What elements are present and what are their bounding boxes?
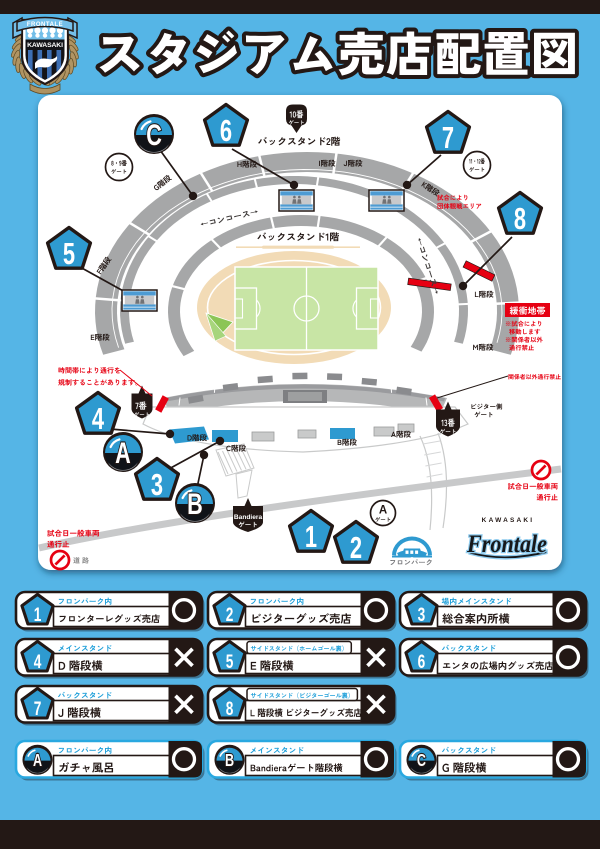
svg-text:B: B — [187, 487, 203, 521]
svg-text:A: A — [379, 505, 387, 517]
svg-text:A: A — [33, 751, 42, 771]
svg-text:7: 7 — [442, 120, 454, 154]
svg-text:6: 6 — [220, 113, 232, 147]
svg-text:Bandiera: Bandiera — [234, 514, 263, 521]
svg-text:1: 1 — [34, 604, 42, 626]
svg-text:3: 3 — [418, 604, 426, 626]
svg-text:6: 6 — [418, 651, 426, 673]
svg-text:2: 2 — [226, 604, 234, 626]
svg-text:B: B — [225, 751, 234, 771]
svg-text:7: 7 — [34, 698, 42, 720]
svg-text:A: A — [115, 436, 131, 470]
svg-text:C: C — [146, 118, 162, 152]
svg-text:KAWASAKI: KAWASAKI — [27, 42, 63, 49]
svg-text:5: 5 — [63, 236, 75, 270]
svg-text:C: C — [417, 751, 426, 771]
svg-text:3: 3 — [151, 467, 163, 501]
svg-text:KAWASAKI: KAWASAKI — [482, 517, 535, 524]
svg-text:4: 4 — [34, 651, 42, 673]
svg-text:Frontale: Frontale — [466, 531, 547, 558]
svg-text:8: 8 — [514, 201, 526, 235]
svg-text:2: 2 — [350, 530, 362, 564]
svg-text:4: 4 — [92, 401, 104, 435]
svg-text:FRONTALE: FRONTALE — [27, 22, 63, 28]
svg-text:8: 8 — [226, 698, 234, 720]
svg-text:1: 1 — [305, 519, 317, 553]
svg-text:5: 5 — [226, 651, 234, 673]
